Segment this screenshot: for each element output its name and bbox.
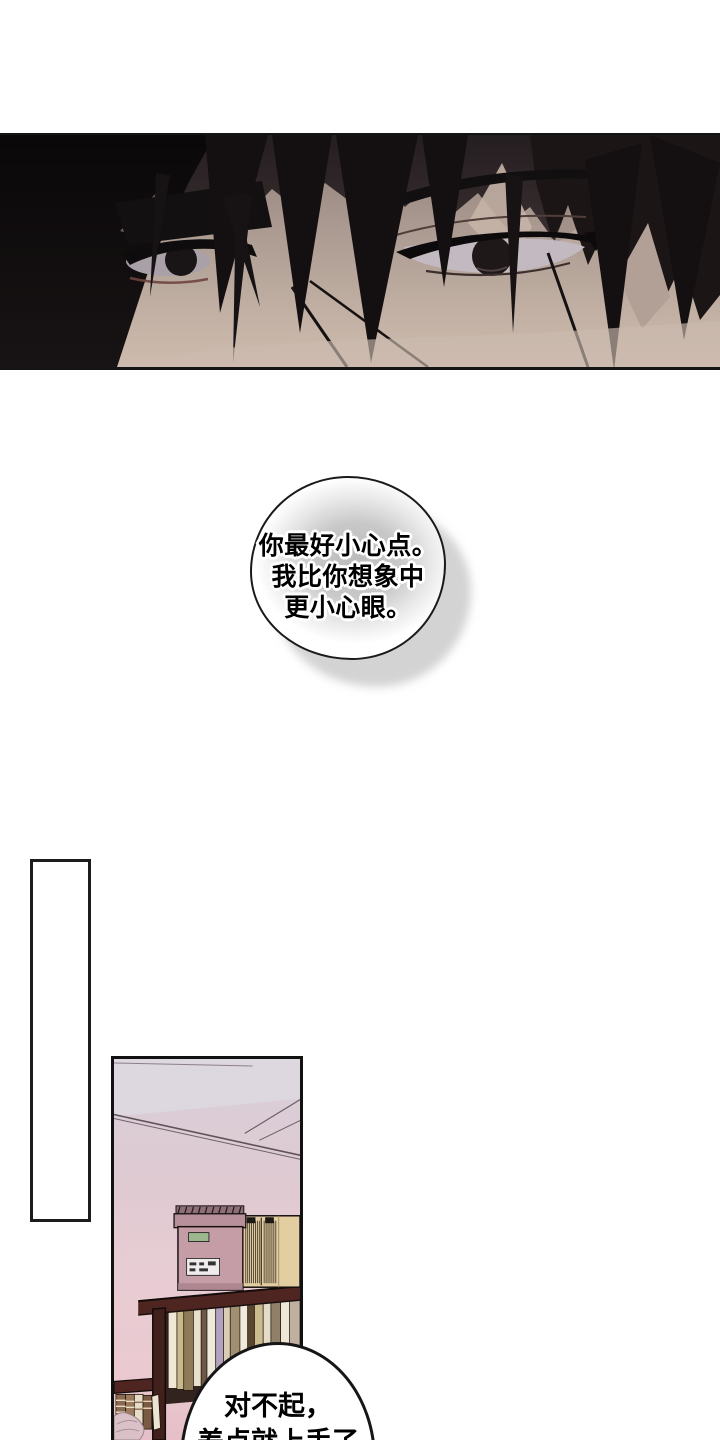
beige-vent-box [242, 1216, 300, 1287]
panel-eyes [0, 133, 720, 370]
speech-bubble-main: 你最好小心点。 我比你想象中 更小心眼。 [250, 476, 446, 660]
speech-bubble-main-text: 你最好小心点。 我比你想象中 更小心眼。 [252, 478, 444, 623]
speech-bubble-bottom-text: 对不起， 差点就上手了 [183, 1345, 373, 1440]
speech-line: 差点就上手了 [183, 1425, 373, 1440]
speech-line: 对不起， [183, 1389, 373, 1425]
comic-page: 你最好小心点。 我比你想象中 更小心眼。 [0, 0, 720, 1440]
box-chip [265, 1217, 274, 1223]
box-white-label [187, 1258, 220, 1275]
eyes-illustration [0, 135, 720, 367]
speech-bubble-bottom: 对不起， 差点就上手了 [180, 1342, 376, 1440]
panel-empty-frame [30, 859, 91, 1222]
speech-line: 我比你想象中 [252, 561, 444, 592]
box-green-label [189, 1233, 209, 1242]
box-lid [174, 1214, 246, 1228]
speech-line: 更小心眼。 [252, 592, 444, 623]
speech-line: 你最好小心点。 [252, 530, 444, 561]
pink-storage-box [174, 1206, 246, 1290]
box-chip [247, 1217, 256, 1223]
